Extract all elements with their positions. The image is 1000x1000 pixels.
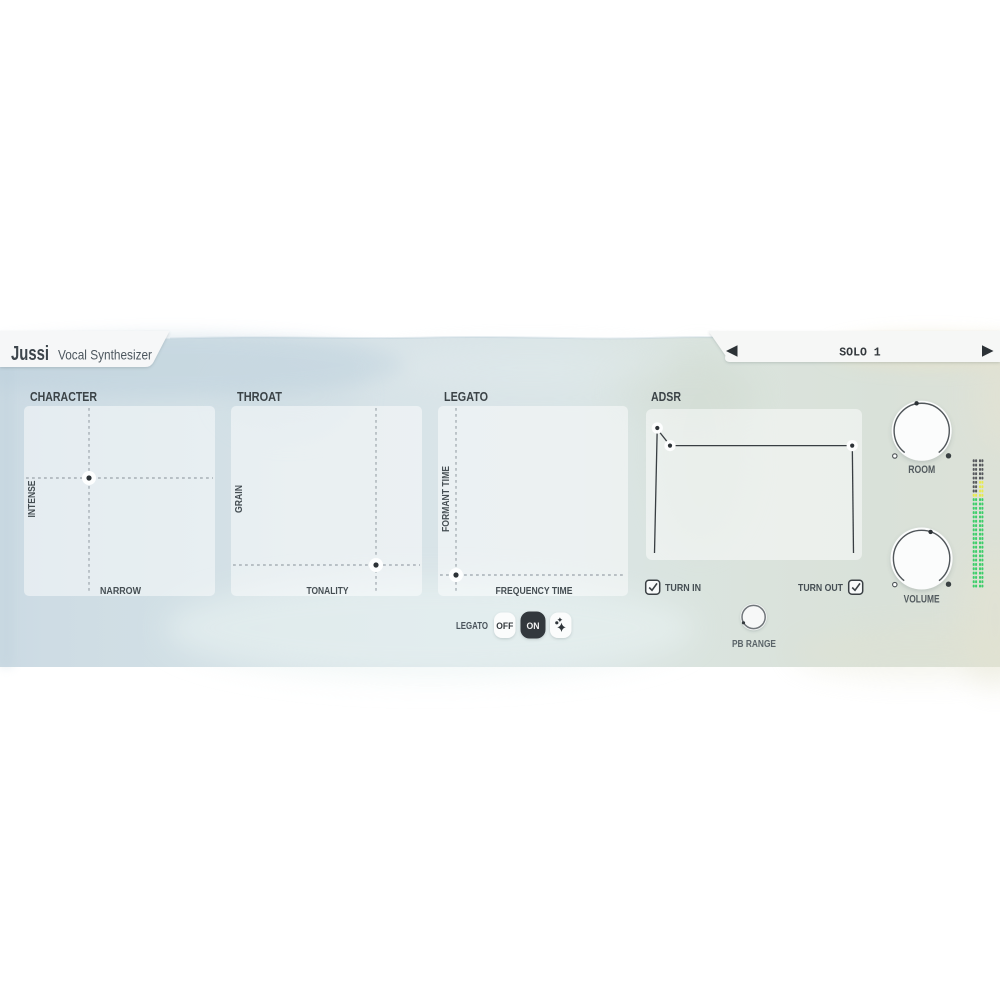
svg-text:LEGATO: LEGATO	[444, 389, 488, 404]
svg-text:ROOM: ROOM	[908, 464, 935, 476]
svg-text:TURN IN: TURN IN	[665, 582, 701, 594]
svg-text:CHARACTER: CHARACTER	[30, 389, 97, 404]
svg-text:ON: ON	[527, 621, 540, 632]
svg-text:TONALITY: TONALITY	[307, 585, 349, 597]
svg-text:TURN OUT: TURN OUT	[798, 582, 843, 594]
svg-text:Jussi: Jussi	[11, 343, 49, 365]
svg-text:FORMANT TIME: FORMANT TIME	[440, 466, 452, 532]
svg-text:FREQUENCY TIME: FREQUENCY TIME	[496, 585, 573, 597]
svg-text:THROAT: THROAT	[237, 389, 282, 404]
svg-text:INTENSE: INTENSE	[26, 481, 38, 518]
svg-text:NARROW: NARROW	[100, 585, 141, 597]
svg-text:SOLO 1: SOLO 1	[839, 347, 881, 360]
svg-text:VOLUME: VOLUME	[904, 594, 940, 606]
svg-text:ADSR: ADSR	[651, 389, 681, 404]
svg-text:LEGATO: LEGATO	[456, 620, 488, 632]
svg-text:PB RANGE: PB RANGE	[732, 638, 776, 650]
svg-text:GRAIN: GRAIN	[233, 485, 245, 513]
svg-text:Vocal Synthesizer: Vocal Synthesizer	[58, 348, 152, 363]
svg-text:OFF: OFF	[496, 621, 513, 632]
